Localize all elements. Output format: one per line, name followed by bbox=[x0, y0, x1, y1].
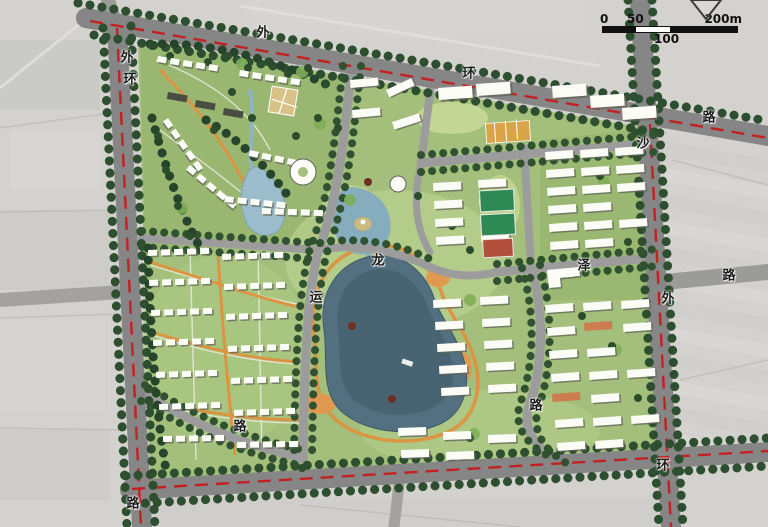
parking-lot bbox=[485, 119, 530, 143]
scale-tick-50: 50 bbox=[627, 12, 644, 26]
road-label-right-2: 外 bbox=[661, 293, 674, 306]
road-label-top-1: 外 bbox=[256, 27, 269, 40]
road-label-right-1: 沙 bbox=[636, 138, 649, 151]
master-plan-map: 外 环 路 外 环 路 沙 外 环 路 龙 运 泽 路 路 0 50 200m … bbox=[0, 0, 768, 527]
ring-building bbox=[290, 159, 316, 185]
road-label-top-2: 环 bbox=[462, 68, 475, 81]
road-label-left-1: 外 bbox=[120, 52, 133, 65]
road-label-right-3: 环 bbox=[656, 460, 669, 473]
scale-tick-0: 0 bbox=[600, 12, 608, 26]
road-label-left-2: 环 bbox=[123, 74, 136, 87]
road-label-branch: 路 bbox=[722, 270, 735, 283]
north-arrow bbox=[688, 0, 724, 22]
road-label-center-2: 运 bbox=[309, 292, 322, 305]
road-label-southeast: 路 bbox=[529, 400, 542, 413]
scale-tick-100: 100 bbox=[654, 32, 679, 46]
road-label-southwest: 路 bbox=[233, 421, 246, 434]
road-label-center-1: 龙 bbox=[371, 255, 384, 268]
lakeside-pavilion bbox=[390, 176, 406, 192]
road-label-top-3: 路 bbox=[702, 112, 715, 125]
sports-courts bbox=[479, 189, 515, 258]
scale-bar: 0 50 200m 100 bbox=[600, 12, 750, 52]
road-label-left-3: 路 bbox=[126, 498, 139, 511]
road-label-east: 泽 bbox=[577, 260, 590, 273]
